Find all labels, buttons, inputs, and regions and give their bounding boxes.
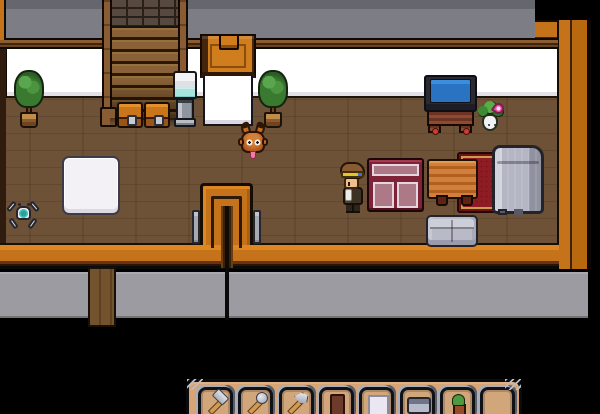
glass-r — [397, 182, 418, 208]
hotbar-slot-1[interactable] — [198, 387, 233, 414]
display-counter[interactable] — [367, 158, 424, 212]
north-door[interactable] — [200, 34, 256, 78]
hotbar-slot-4[interactable] — [319, 387, 354, 414]
plant-bush — [258, 70, 288, 108]
south-door[interactable] — [88, 267, 116, 327]
white-rug — [62, 156, 120, 215]
robot-pet[interactable] — [8, 198, 38, 234]
plant-bush — [14, 70, 44, 108]
door-tab — [219, 34, 239, 50]
hotbar-slot-7[interactable] — [440, 387, 475, 414]
chest-1[interactable] — [117, 102, 143, 128]
cooler-base — [174, 118, 196, 127]
player-strap — [345, 189, 352, 201]
television-stand[interactable] — [424, 75, 477, 133]
white-panel-icon — [365, 392, 389, 414]
chest-2[interactable] — [144, 102, 170, 128]
player-character[interactable] — [339, 162, 367, 214]
glass-l — [373, 182, 394, 208]
wall-divider-line — [225, 266, 229, 320]
potted-plant-icon — [445, 392, 469, 414]
building-right-wall — [557, 20, 591, 269]
crab-eyes — [246, 139, 261, 146]
table-leg-r — [461, 195, 473, 206]
cooler-stand — [176, 98, 194, 120]
potted-plant-left — [14, 70, 44, 128]
tv-screen — [430, 79, 471, 103]
wood-table[interactable] — [427, 159, 478, 199]
cooler-jug — [173, 71, 197, 99]
pillar-left — [192, 210, 200, 244]
water-cooler[interactable] — [172, 71, 198, 127]
south-wall-trim — [0, 243, 559, 269]
hotbar — [186, 379, 522, 414]
bed[interactable] — [492, 145, 544, 214]
sofa-split — [451, 220, 453, 242]
tv-leg-l — [428, 124, 441, 133]
stair-rail-l — [102, 0, 112, 122]
north-wall-trim — [0, 38, 558, 49]
dividing-wall-stub — [203, 76, 253, 126]
bed-feet — [498, 209, 507, 215]
hotbar-slot-8[interactable] — [480, 387, 515, 414]
stair-brick — [112, 0, 178, 28]
hotbar-slot-3[interactable] — [279, 387, 314, 414]
crab-claw-l — [238, 138, 244, 146]
bot-body — [16, 206, 31, 220]
door-icon — [324, 392, 348, 414]
tv-leg-r — [459, 124, 472, 133]
crab-tongue — [250, 151, 256, 159]
upper-gray-wall — [0, 0, 535, 38]
potted-plant-middle — [258, 70, 288, 128]
bed-crease — [497, 161, 539, 164]
hotbar-slot-2[interactable] — [238, 387, 273, 414]
plant-pot — [20, 112, 38, 128]
entry-alcove-channel — [221, 206, 233, 268]
sofa-icon — [405, 392, 429, 414]
sofa[interactable] — [426, 215, 478, 247]
glass-top — [372, 164, 419, 176]
pillar-right — [253, 210, 261, 244]
player-goggles — [341, 171, 364, 178]
game-viewport — [0, 0, 600, 414]
crab-claw-r — [262, 138, 268, 146]
shovel-icon — [244, 392, 268, 414]
hotbar-slot-6[interactable] — [400, 387, 435, 414]
left-wall-edge — [0, 0, 6, 40]
pm-body — [482, 114, 498, 131]
table-leg-l — [436, 195, 448, 206]
hammer-icon — [204, 392, 228, 414]
axe-icon — [284, 392, 308, 414]
crab-pet[interactable] — [238, 122, 268, 160]
plant-monster[interactable] — [478, 101, 504, 133]
hotbar-slot-5[interactable] — [359, 387, 394, 414]
